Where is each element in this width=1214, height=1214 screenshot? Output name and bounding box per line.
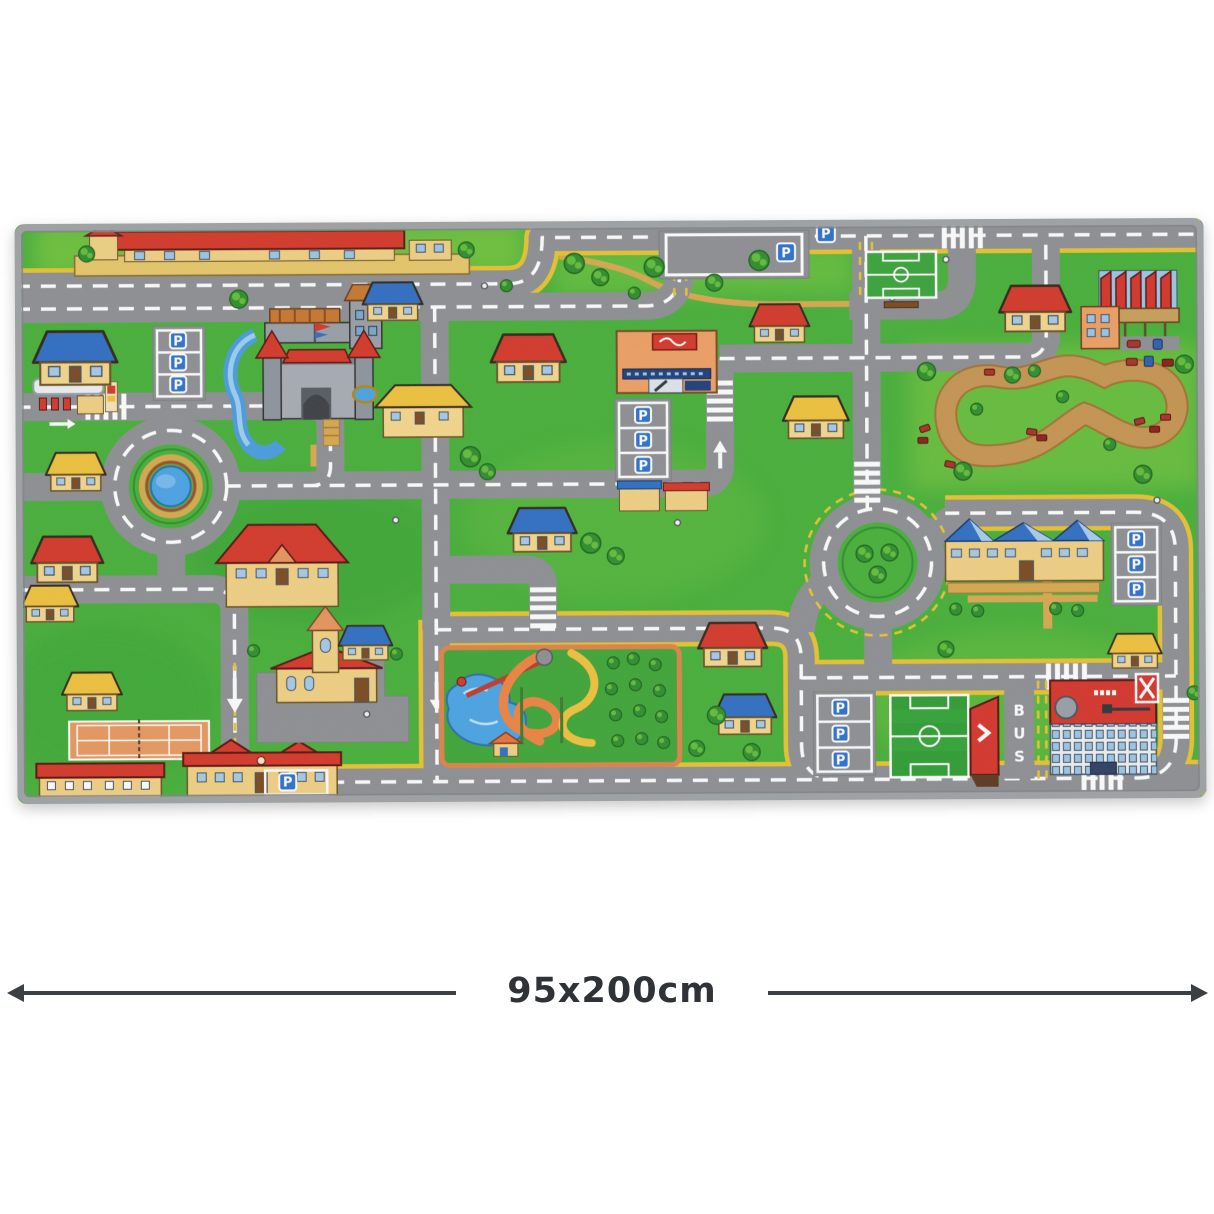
right-arrow-line [768,991,1198,995]
carpet-texture [14,218,1206,804]
product-photo-canvas: P P P P P [0,0,1214,1214]
dimension-label: 95x200cm [456,971,768,1011]
left-arrow-line [16,991,456,995]
right-arrowhead-icon [1191,984,1208,1002]
product-rug-image: P P P P P [14,218,1206,804]
